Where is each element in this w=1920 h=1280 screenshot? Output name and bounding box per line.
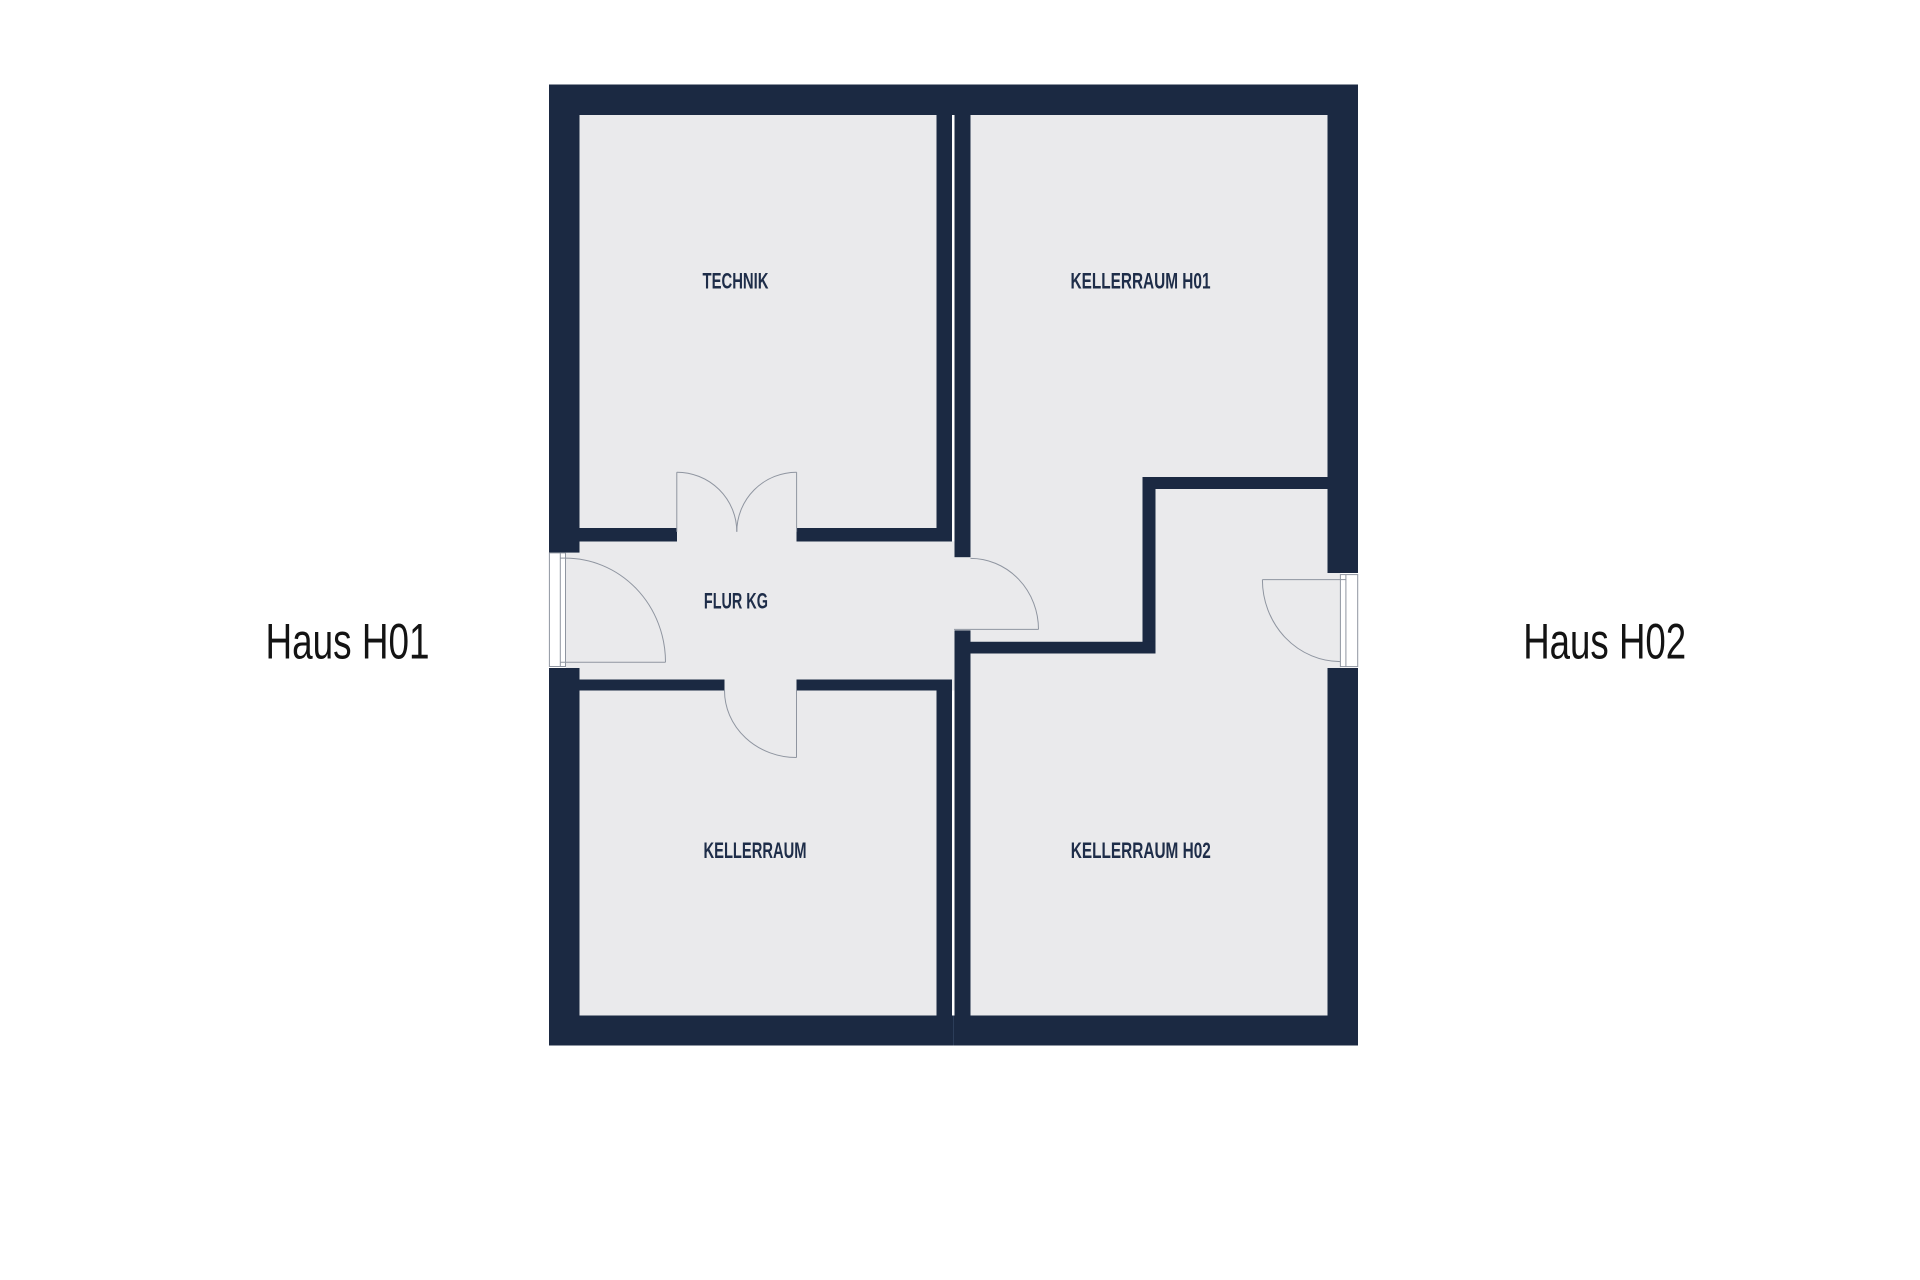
svg-text:FLUR KG: FLUR KG <box>704 589 768 614</box>
svg-text:Haus H01: Haus H01 <box>266 614 430 670</box>
svg-text:KELLERRAUM: KELLERRAUM <box>704 838 807 863</box>
svg-text:TECHNIK: TECHNIK <box>703 269 769 294</box>
svg-text:KELLERRAUM H01: KELLERRAUM H01 <box>1071 269 1211 294</box>
svg-text:Haus H02: Haus H02 <box>1523 614 1686 670</box>
svg-text:KELLERRAUM H02: KELLERRAUM H02 <box>1071 838 1211 863</box>
